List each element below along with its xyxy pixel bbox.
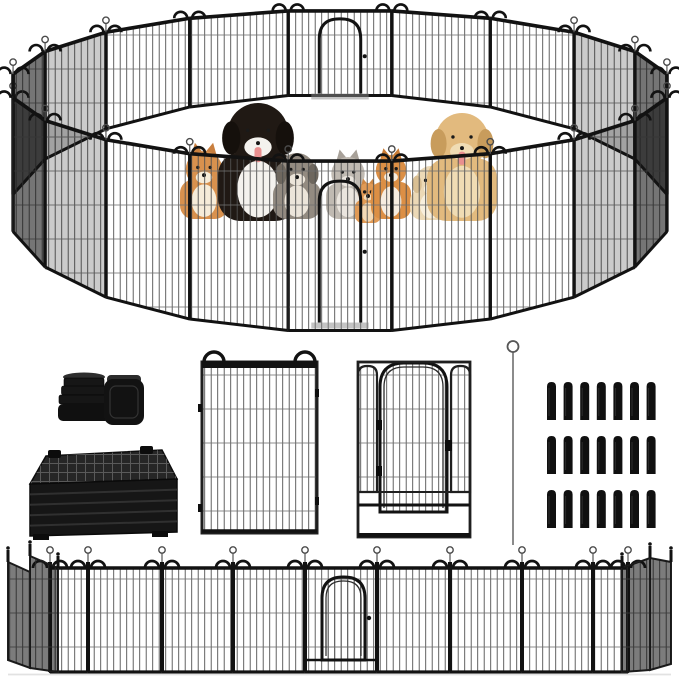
pet-nose [256, 141, 260, 145]
ring-fence-panel [190, 146, 304, 331]
stake-body [597, 490, 606, 528]
panel-top-bar [202, 361, 317, 368]
panel-mesh [106, 140, 190, 319]
flat-panel-row [6, 540, 673, 674]
stake-body [564, 382, 573, 420]
ground-stake [564, 490, 573, 528]
stack-foot [33, 534, 49, 540]
gate-door [380, 363, 447, 512]
stack-front-face [30, 479, 177, 536]
connector-rod-ring [10, 59, 16, 65]
rubber-foot-caps [58, 373, 144, 426]
end-post-finial [28, 540, 32, 544]
ring-fence-panel [376, 4, 490, 107]
connector-rod-ring [447, 547, 453, 553]
panel-mesh [106, 18, 190, 129]
connector-nub [315, 389, 319, 397]
ground-stake [613, 436, 622, 474]
pet-eye [469, 135, 472, 138]
connector-rod-ring [632, 36, 638, 42]
panel-connector-rod [508, 341, 519, 545]
angled-panel-shading [30, 556, 58, 672]
stake-body [647, 490, 656, 528]
row-gate-panel [305, 568, 377, 672]
gate-latch [363, 250, 367, 254]
angled-panel-shading [8, 562, 30, 668]
panel-mesh [162, 568, 233, 672]
pet-eye [451, 135, 454, 138]
stack-foot [152, 531, 168, 537]
panel-edge-shading [635, 98, 667, 267]
stake-body [647, 436, 656, 474]
ground-stake [580, 436, 589, 474]
stake-body [630, 436, 639, 474]
ground-stake [647, 436, 656, 474]
connector-nub [198, 504, 202, 512]
rod-loop [508, 341, 519, 352]
stake-body [597, 436, 606, 474]
playpen-product-scene [0, 0, 679, 677]
cap-rib [62, 386, 107, 395]
ground-stake [580, 490, 589, 528]
loop-handle [0, 68, 11, 74]
stake-body [647, 382, 656, 420]
stake-body [547, 382, 556, 420]
connector-rod-ring [159, 547, 165, 553]
ground-stake [647, 382, 656, 420]
gate-latch [445, 440, 452, 451]
connector-rod-ring [103, 17, 109, 23]
panel-mesh [377, 568, 450, 672]
panel-mesh [490, 140, 574, 319]
end-post-finial [56, 552, 60, 556]
ring-fence-panel [392, 139, 506, 331]
loop-handle [0, 91, 11, 97]
panel-mesh [522, 568, 593, 672]
row-fence-panel [233, 568, 305, 672]
row-left-end [6, 540, 60, 672]
gate-side-strip [358, 366, 377, 492]
connector-rod-ring [47, 547, 53, 553]
angled-panel-shading [650, 558, 671, 670]
stake-body [580, 382, 589, 420]
component-parts [30, 341, 656, 545]
end-post-finial [648, 542, 652, 546]
angled-panel-shading [622, 558, 650, 672]
stake-body [613, 436, 622, 474]
gate-hinge [376, 420, 382, 430]
stack-clamp [140, 446, 153, 454]
connector-rod-ring [85, 547, 91, 553]
panel-mesh [190, 154, 289, 331]
cap-base [58, 404, 110, 421]
panel-mesh [233, 568, 305, 672]
ground-stake [630, 436, 639, 474]
pet-nose [460, 146, 464, 150]
connector-nub [315, 497, 319, 505]
panel-mesh [88, 568, 162, 672]
loop-handle [637, 45, 650, 52]
ground-stake [597, 382, 606, 420]
ground-stake [580, 382, 589, 420]
gate-step [311, 93, 368, 99]
loop-handle [669, 91, 679, 97]
stake-body [630, 490, 639, 528]
connector-rod-ring [302, 547, 308, 553]
single-fence-panel [198, 352, 319, 533]
pet-eye [267, 129, 270, 132]
ground-stake [630, 490, 639, 528]
gate-step [311, 323, 368, 329]
stake-body [580, 490, 589, 528]
ring-gate-panel [288, 146, 407, 331]
connector-rod-ring [374, 547, 380, 553]
cap-rib [59, 395, 109, 404]
end-post-finial [669, 546, 673, 550]
connector-rod-ring [389, 146, 395, 152]
ground-stake [647, 490, 656, 528]
folded-panels-stack [30, 446, 177, 540]
ring-gate-panel [273, 4, 392, 99]
gate-latch [367, 616, 371, 620]
row-fence-panel [162, 568, 233, 672]
stack-clamp [48, 450, 61, 458]
row-fence-panel [450, 568, 522, 672]
ground-stake [597, 490, 606, 528]
panel-mesh [288, 161, 392, 330]
panel-mesh [392, 11, 491, 107]
panel-mesh [490, 18, 574, 129]
gate-hinge [376, 466, 382, 476]
connector-rod-ring [519, 547, 525, 553]
stake-body [630, 382, 639, 420]
stake-body [547, 436, 556, 474]
pet-ear [222, 121, 240, 154]
end-post-finial [6, 546, 10, 550]
stake-body [580, 436, 589, 474]
ground-stake [564, 436, 573, 474]
ring-fence-panel [490, 125, 589, 319]
connector-rod-ring [625, 547, 631, 553]
row-fence-panel [377, 568, 450, 672]
connector-nub [198, 404, 202, 412]
ring-fence-panel [90, 17, 189, 129]
panel-mesh [392, 154, 491, 331]
end-post-finial [620, 552, 624, 556]
loop-handle [577, 26, 590, 33]
pet-ear [431, 129, 447, 158]
ground-stakes-set [547, 382, 656, 528]
connector-rod-ring [571, 17, 577, 23]
ground-stake [597, 436, 606, 474]
gate-latch [363, 54, 367, 58]
ground-stake [630, 382, 639, 420]
stake-body [613, 382, 622, 420]
connector-rod-ring [664, 59, 670, 65]
panel-mesh [450, 568, 522, 672]
panel-mesh [202, 362, 317, 533]
cap-rib [64, 378, 104, 387]
ground-stake [613, 490, 622, 528]
connector-rod-ring [230, 547, 236, 553]
loop-handle [90, 26, 103, 33]
gate-door [322, 577, 365, 660]
ground-stake [564, 382, 573, 420]
stake-body [597, 382, 606, 420]
stake-body [564, 436, 573, 474]
pet-eye [246, 129, 249, 132]
connector-rod-ring [590, 547, 596, 553]
ground-stake [613, 382, 622, 420]
product-image-canvas [0, 0, 679, 677]
ground-stake [547, 436, 556, 474]
loop-handle [30, 45, 43, 52]
stake-body [547, 490, 556, 528]
ring-fence-panel [106, 139, 205, 320]
row-fence-panel [88, 568, 162, 672]
stake-body [564, 490, 573, 528]
connector-rod-ring [187, 139, 193, 145]
ground-stake [547, 490, 556, 528]
row-fence-panel [522, 568, 593, 672]
gate-side-strip [451, 366, 470, 492]
panel-edge-shading [13, 98, 45, 267]
connector-rod-ring [42, 36, 48, 42]
loop-handle [669, 68, 679, 74]
stake-body [613, 490, 622, 528]
gate-panel-with-door [358, 362, 470, 537]
panel-mesh [190, 11, 289, 107]
ring-fence-panel [174, 11, 288, 107]
ground-stake [547, 382, 556, 420]
panel-mesh [288, 11, 392, 96]
